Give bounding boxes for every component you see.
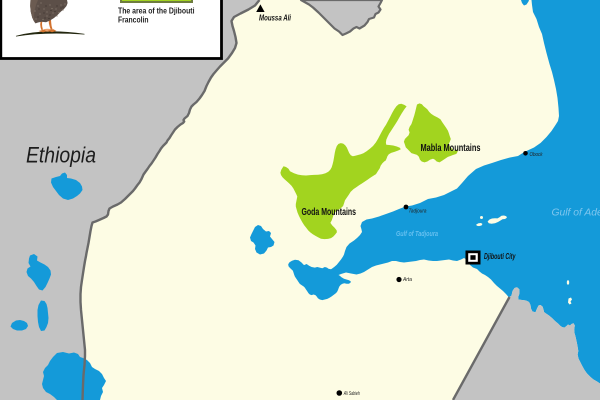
- svg-text:Gulf of Tadjoura: Gulf of Tadjoura: [396, 231, 438, 238]
- svg-text:Francolin: Francolin: [118, 14, 149, 24]
- svg-text:Mabla Mountains: Mabla Mountains: [421, 143, 481, 154]
- svg-text:Gulf of Aden: Gulf of Aden: [552, 207, 600, 219]
- svg-text:Obock: Obock: [530, 152, 543, 158]
- svg-text:Arta: Arta: [402, 277, 412, 283]
- svg-text:Ali Sabieh: Ali Sabieh: [343, 391, 360, 397]
- svg-text:Moussa Ali: Moussa Ali: [259, 13, 292, 22]
- svg-text:Djibouti City: Djibouti City: [484, 252, 516, 261]
- svg-text:Ethiopia: Ethiopia: [26, 143, 96, 168]
- svg-text:Tadjoura: Tadjoura: [409, 208, 427, 214]
- svg-text:Goda Mountains: Goda Mountains: [302, 207, 357, 218]
